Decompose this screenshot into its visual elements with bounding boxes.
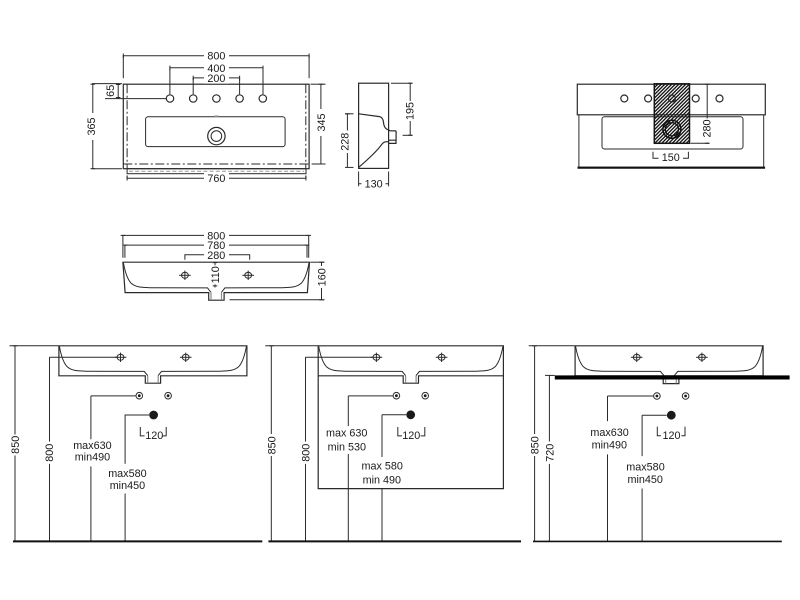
svg-text:min450: min450	[627, 474, 662, 486]
svg-text:max630: max630	[590, 427, 628, 439]
svg-text:800: 800	[300, 444, 312, 462]
svg-text:800: 800	[207, 51, 225, 63]
svg-text:850: 850	[529, 436, 541, 454]
svg-text:800: 800	[44, 444, 56, 462]
svg-text:65: 65	[105, 85, 117, 97]
svg-text:365: 365	[86, 117, 98, 135]
svg-text:max580: max580	[108, 468, 146, 480]
svg-text:120: 120	[145, 430, 163, 442]
svg-text:120: 120	[662, 430, 680, 442]
svg-text:120: 120	[402, 430, 420, 442]
svg-text:min 490: min 490	[363, 474, 401, 486]
svg-text:160: 160	[317, 268, 329, 286]
svg-text:150: 150	[662, 152, 680, 164]
svg-text:760: 760	[207, 173, 225, 185]
svg-text:110: 110	[210, 266, 222, 283]
svg-text:850: 850	[10, 436, 22, 454]
svg-text:max 580: max 580	[361, 461, 402, 473]
svg-text:850: 850	[266, 436, 278, 454]
svg-text:min 530: min 530	[328, 441, 366, 453]
svg-text:min490: min490	[592, 440, 627, 452]
svg-text:max 630: max 630	[326, 428, 367, 440]
svg-text:min490: min490	[75, 452, 110, 464]
svg-text:345: 345	[316, 113, 328, 131]
svg-text:280: 280	[207, 250, 225, 262]
svg-text:max630: max630	[73, 440, 111, 452]
svg-text:min450: min450	[110, 480, 145, 492]
svg-text:228: 228	[339, 133, 351, 151]
svg-text:195: 195	[405, 102, 417, 120]
svg-text:max580: max580	[626, 461, 664, 473]
svg-text:720: 720	[544, 444, 556, 462]
svg-text:200: 200	[207, 73, 225, 85]
svg-text:130: 130	[365, 179, 383, 191]
svg-text:280: 280	[702, 119, 714, 137]
